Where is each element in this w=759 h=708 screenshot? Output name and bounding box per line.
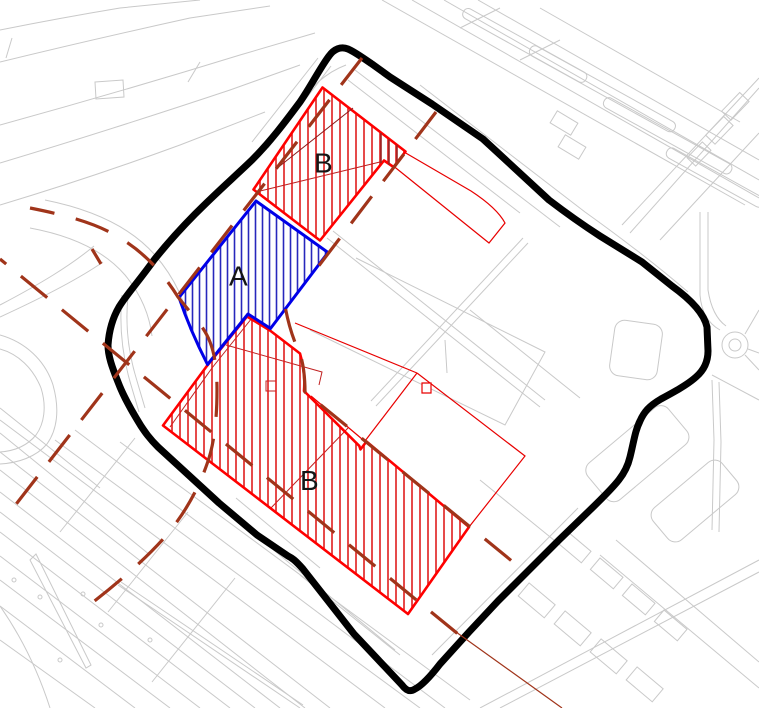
- svg-text:B: B: [314, 148, 333, 179]
- svg-text:B: B: [300, 465, 319, 496]
- svg-text:A: A: [229, 261, 248, 292]
